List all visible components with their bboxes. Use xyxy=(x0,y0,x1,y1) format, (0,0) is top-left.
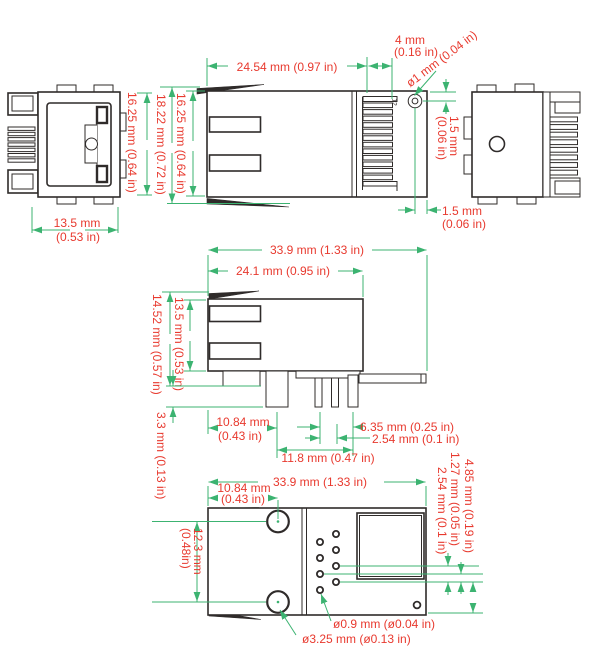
front-post xyxy=(266,371,288,407)
dimension-label: 33.9 mm (1.33 in) xyxy=(270,243,364,257)
pin xyxy=(332,378,339,407)
dimension-label: 16.25 mm (0.64 in) xyxy=(174,93,188,194)
dimension-label: 16.25 mm (0.64 in) xyxy=(125,92,139,193)
dimension-label: (0.53 in) xyxy=(56,230,100,244)
dimension-label: 2.54 mm (0.1 in) xyxy=(435,467,449,554)
dimension-label: 12.3 mm(0.48in) xyxy=(179,528,205,575)
dim-front-height: 16.25 mm (0.64 in) xyxy=(125,92,152,195)
dim-hole-from-top: 1.5 mm(0.06 in) xyxy=(423,79,461,160)
pin xyxy=(348,375,358,407)
dimension-label: 13.5 mm xyxy=(54,216,101,230)
pcb-tail xyxy=(359,374,426,383)
dimension-label: 24.54 mm (0.97 in) xyxy=(237,60,338,74)
dimension-label: ø0.9 mm (ø0.04 in) xyxy=(333,617,435,631)
dimension-label: 1.5 mm xyxy=(442,204,482,218)
dim-side-body-height: 16.25 mm (0.64 in) xyxy=(174,91,205,196)
dimension-label: 14.52 mm (0.57 in) xyxy=(150,294,164,395)
shield-fins-left xyxy=(8,127,35,162)
latch-slot-top xyxy=(97,107,107,123)
dimension-label: 10.84 mm xyxy=(216,415,269,429)
contact-number-label: 12 xyxy=(391,99,398,107)
front-hole xyxy=(86,138,98,150)
dimension-label: (0.06 in) xyxy=(442,217,486,231)
dimension-label: 4.85 mm (0.19 in) xyxy=(462,459,476,553)
dim-pin-span: 11.8 mm (0.47 in) xyxy=(278,450,375,465)
latch-slot-bottom xyxy=(97,166,107,182)
dimension-label: 18.22 mm (0.72 in) xyxy=(154,94,168,195)
dimension-label: ø3.25 mm (ø0.13 in) xyxy=(302,632,411,646)
shield-fins-right xyxy=(550,117,578,175)
corner-hole xyxy=(414,602,421,609)
front-view xyxy=(8,85,126,204)
dimension-label: 24.1 mm (0.95 in) xyxy=(236,264,330,278)
dimension-label: (0.43 in) xyxy=(218,429,262,443)
technical-drawing: 12 xyxy=(0,0,600,653)
side-hole xyxy=(490,137,505,152)
dimension-label: 1.5 mm(0.06 in) xyxy=(435,116,461,160)
right-side-view xyxy=(464,84,580,204)
dim-front-width: 13.5 mm (0.53 in) xyxy=(32,207,118,244)
contact-comb xyxy=(363,97,398,192)
dimension-label: 2.54 mm (0.1 in) xyxy=(372,432,459,446)
dimension-label: 11.8 mm (0.47 in) xyxy=(281,451,374,465)
dimension-label: 3.3 mm (0.13 in) xyxy=(154,412,168,499)
profile-view xyxy=(208,291,426,407)
side-view: 12 xyxy=(197,85,427,208)
spring-finger-bottom xyxy=(207,199,289,208)
pedestal xyxy=(223,371,260,386)
pin xyxy=(315,378,322,407)
dim-profile-body-height: 13.5 mm (0.53 in) xyxy=(172,297,206,391)
dim-profile-housing-length: 24.1 mm (0.95 in) xyxy=(209,264,364,297)
dim-post-offset: 10.84 mm (0.43 in) xyxy=(208,410,277,458)
bottom-view xyxy=(208,508,426,620)
dimension-label: 13.5 mm (0.53 in) xyxy=(172,297,186,391)
dimension-label: 33.9 mm (1.33 in) xyxy=(273,475,367,489)
spring-finger xyxy=(209,291,259,299)
dimension-label: (0.43 in) xyxy=(221,492,265,506)
dimension-label: 1.27 mm (0.05 in) xyxy=(448,452,462,546)
